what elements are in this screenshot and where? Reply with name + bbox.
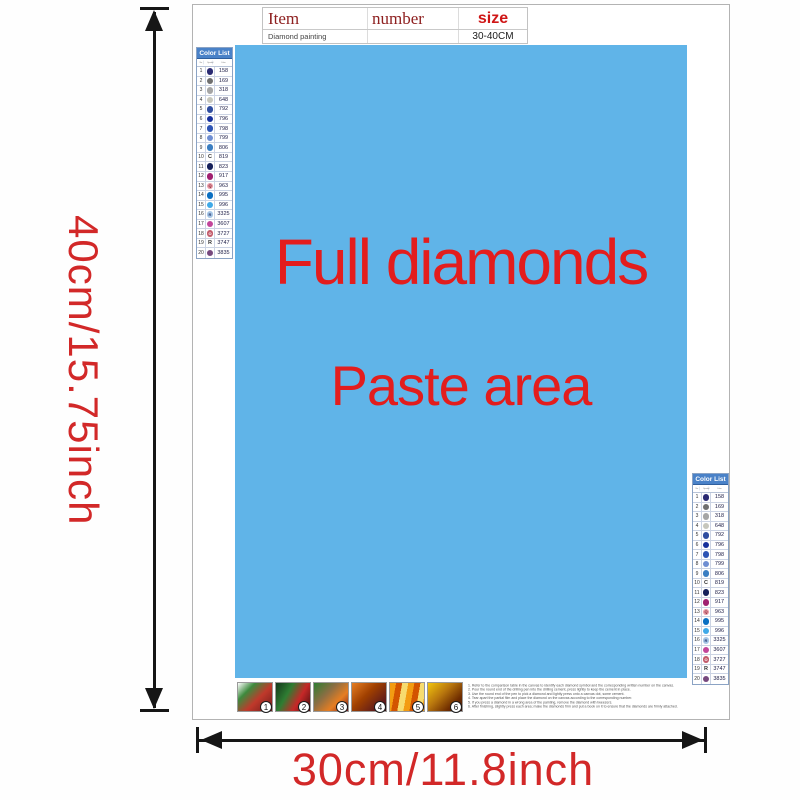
color-symbol: [702, 598, 711, 607]
color-symbol: R: [702, 636, 711, 645]
symbol-dot-icon: [703, 504, 710, 511]
symbol-dot-icon: [207, 125, 214, 132]
color-list-row: 5792: [197, 105, 232, 115]
color-code: 158: [711, 494, 728, 500]
color-number: 20: [197, 248, 206, 258]
color-number: 3: [197, 86, 206, 95]
color-number: 10: [693, 579, 702, 588]
color-symbol: [702, 522, 711, 531]
color-code: 798: [711, 552, 728, 558]
symbol-dot-icon: [703, 676, 710, 683]
symbol-dot-icon: [703, 542, 710, 549]
color-number: 8: [693, 560, 702, 569]
color-code: 3747: [215, 240, 232, 246]
color-list-row: 8799: [197, 134, 232, 144]
color-number: 14: [197, 191, 206, 200]
color-list-row: 173607: [197, 220, 232, 230]
color-number: 15: [197, 201, 206, 210]
color-code: 318: [215, 87, 232, 93]
color-symbol: [206, 172, 215, 181]
arrow-left-icon: [201, 731, 222, 749]
color-list-row: 203835: [197, 248, 232, 258]
color-list-row: 7798: [693, 550, 728, 560]
color-symbol: Q: [206, 182, 215, 191]
symbol-dot-icon: [207, 68, 214, 75]
color-symbol: [702, 550, 711, 559]
color-symbol: [702, 569, 711, 578]
instruction-line: 6. After finishing, slightly press each …: [468, 705, 722, 709]
color-list-row: 2169: [693, 503, 728, 513]
color-list-row: 13Q963: [693, 608, 728, 618]
symbol-dot-icon: [703, 599, 710, 606]
color-number: 12: [693, 598, 702, 607]
color-symbol: R: [702, 665, 711, 674]
color-list-row: 12917: [693, 598, 728, 608]
color-number: 9: [197, 143, 206, 152]
step-number-badge: 6: [450, 701, 462, 713]
color-symbol: [206, 115, 215, 124]
color-code: 823: [215, 164, 232, 170]
symbol-dot-icon: [703, 647, 710, 654]
color-number: 6: [197, 115, 206, 124]
color-number: 16: [693, 636, 702, 645]
paste-area-title: Full diamonds: [235, 225, 687, 299]
color-code: 799: [215, 135, 232, 141]
color-code: 823: [711, 590, 728, 596]
color-code: 963: [711, 609, 728, 615]
symbol-dot-icon: [703, 628, 710, 635]
color-symbol: [206, 162, 215, 171]
color-number: 18: [197, 229, 206, 238]
spec-number-value: [368, 30, 459, 43]
color-symbol: [206, 191, 215, 200]
color-code: 3607: [711, 647, 728, 653]
color-symbol: [206, 86, 215, 95]
step-number-badge: 2: [298, 701, 310, 713]
color-code: 3835: [215, 250, 232, 256]
color-code: 648: [711, 523, 728, 529]
symbol-dot-icon: [207, 173, 214, 180]
color-symbol: [702, 503, 711, 512]
symbol-dot-icon: [703, 561, 710, 568]
color-code: 792: [215, 106, 232, 112]
color-number: 17: [197, 220, 206, 229]
color-code: 996: [711, 628, 728, 634]
color-symbol: [702, 493, 711, 502]
color-list-subheader: No. Symbol Color: [693, 485, 728, 493]
symbol-dot-icon: [207, 163, 214, 170]
color-number: 17: [693, 646, 702, 655]
spec-table-row: Diamond painting 30-40CM: [263, 30, 527, 43]
color-number: 8: [197, 134, 206, 143]
color-code: 917: [711, 599, 728, 605]
step-thumbnail: 4: [351, 682, 387, 712]
color-number: 13: [197, 182, 206, 191]
instructions-text: 1. Refer to the comparison table in the …: [468, 684, 722, 709]
color-number: 20: [693, 674, 702, 684]
color-code: 796: [215, 116, 232, 122]
step-thumbnail: 2: [275, 682, 311, 712]
step-number-badge: 3: [336, 701, 348, 713]
spec-col-number: number: [368, 8, 459, 29]
symbol-dot-icon: [207, 221, 214, 228]
color-symbol: Q: [702, 608, 711, 617]
color-symbol: [702, 674, 711, 684]
color-list-col-no: No.: [200, 62, 203, 64]
color-list-row: 14995: [693, 617, 728, 627]
color-list-row: 173607: [693, 646, 728, 656]
color-code: 169: [711, 504, 728, 510]
symbol-dot-icon: [703, 513, 710, 520]
color-list-row: 1158: [693, 493, 728, 503]
color-symbol: [206, 220, 215, 229]
step-number-badge: 4: [374, 701, 386, 713]
symbol-dot-icon: [703, 589, 710, 596]
arrow-right-icon: [682, 731, 703, 749]
color-symbol: R: [206, 239, 215, 248]
symbol-dot-icon: [703, 618, 710, 625]
color-number: 14: [693, 617, 702, 626]
color-code: 3607: [215, 221, 232, 227]
symbol-dot-icon: Q: [703, 609, 710, 616]
color-list-row: 15996: [197, 201, 232, 211]
color-code: 917: [215, 173, 232, 179]
color-list-row: 19R3747: [693, 665, 728, 675]
color-symbol: [702, 617, 711, 626]
paste-area-subtitle: Paste area: [235, 353, 687, 418]
color-list-row: 10C819: [197, 153, 232, 163]
symbol-dot-icon: [703, 532, 710, 539]
color-symbol: C: [702, 579, 711, 588]
color-list-row: 14995: [197, 191, 232, 201]
color-number: 10: [197, 153, 206, 162]
arrow-down-icon: [145, 688, 163, 709]
color-code: 318: [711, 513, 728, 519]
horizontal-arrow-line: [199, 739, 705, 742]
symbol-dot-icon: [207, 106, 214, 113]
color-list-title: Color List: [693, 474, 728, 485]
color-number: 15: [693, 627, 702, 636]
color-list-row: 7798: [197, 124, 232, 134]
color-symbol: [702, 541, 711, 550]
color-symbol: [702, 531, 711, 540]
symbol-dot-icon: [703, 570, 710, 577]
color-code: 995: [215, 192, 232, 198]
color-symbol: [206, 134, 215, 143]
color-code: 796: [711, 542, 728, 548]
step-number-badge: 1: [260, 701, 272, 713]
color-code: 819: [711, 580, 728, 586]
color-code: 792: [711, 532, 728, 538]
color-number: 4: [197, 96, 206, 105]
color-list-row: 13Q963: [197, 182, 232, 192]
color-number: 19: [693, 665, 702, 674]
color-list-right: Color List No. Symbol Color 115821693318…: [692, 473, 729, 685]
symbol-dot-icon: [207, 250, 214, 257]
color-list-col-color: Color: [717, 488, 721, 490]
color-list-title: Color List: [197, 48, 232, 59]
color-number: 16: [197, 210, 206, 219]
color-list-row: 3318: [693, 512, 728, 522]
color-symbol: C: [206, 153, 215, 162]
color-number: 5: [197, 105, 206, 114]
item-spec-table: Item number size Diamond painting 30-40C…: [262, 7, 528, 44]
color-symbol: [206, 143, 215, 152]
color-list-row: 9806: [693, 569, 728, 579]
color-list-row: 203835: [693, 674, 728, 684]
color-list-left: Color List No. Symbol Color 115821693318…: [196, 47, 233, 259]
symbol-dot-icon: O: [207, 230, 214, 237]
color-number: 5: [693, 531, 702, 540]
color-symbol: [702, 560, 711, 569]
color-list-col-color: Color: [221, 62, 225, 64]
symbol-dot-icon: Q: [207, 183, 214, 190]
step-thumbnail: 5: [389, 682, 425, 712]
color-number: 1: [693, 493, 702, 502]
vertical-arrow-line: [153, 12, 156, 708]
arrow-up-icon: [145, 10, 163, 31]
color-list-row: 16R3325: [693, 636, 728, 646]
width-dimension-label: 30cm/11.8inch: [243, 744, 643, 796]
step-thumbnail: 3: [313, 682, 349, 712]
color-list-row: 10C819: [693, 579, 728, 589]
color-code: 798: [215, 126, 232, 132]
symbol-letter: R: [208, 240, 212, 246]
color-list-subheader: No. Symbol Color: [197, 59, 232, 67]
color-code: 3747: [711, 666, 728, 672]
instructions-block: 1. Refer to the comparison table in the …: [468, 684, 722, 712]
color-list-row: 1158: [197, 67, 232, 77]
color-number: 9: [693, 569, 702, 578]
symbol-letter: C: [208, 154, 212, 160]
symbol-letter: C: [704, 580, 708, 586]
symbol-dot-icon: [207, 192, 214, 199]
color-number: 6: [693, 541, 702, 550]
color-symbol: [702, 512, 711, 521]
color-symbol: [206, 77, 215, 86]
color-list-row: 12917: [197, 172, 232, 182]
spec-item-value: Diamond painting: [263, 30, 368, 43]
color-code: 799: [711, 561, 728, 567]
symbol-dot-icon: [703, 551, 710, 558]
color-code: 996: [215, 202, 232, 208]
color-list-row: 15996: [693, 627, 728, 637]
color-symbol: [206, 201, 215, 210]
spec-col-size: size: [459, 8, 527, 29]
symbol-dot-icon: [703, 494, 710, 501]
color-list-row: 6796: [197, 115, 232, 125]
color-number: 12: [197, 172, 206, 181]
color-number: 13: [693, 608, 702, 617]
step-thumbnail: 6: [427, 682, 463, 712]
symbol-dot-icon: [703, 523, 710, 530]
symbol-letter: R: [704, 666, 708, 672]
color-list-row: 8799: [693, 560, 728, 570]
spec-col-item: Item: [263, 8, 368, 29]
color-list-row: 4648: [693, 522, 728, 532]
vertical-arrow-bottom-cap: [140, 709, 169, 712]
color-code: 3727: [711, 657, 728, 663]
color-symbol: [206, 67, 215, 76]
color-number: 19: [197, 239, 206, 248]
color-list-row: 16R3325: [197, 210, 232, 220]
step-thumbnail: 1: [237, 682, 273, 712]
symbol-dot-icon: O: [703, 656, 710, 663]
color-number: 7: [197, 124, 206, 133]
symbol-dot-icon: [207, 87, 214, 94]
color-code: 806: [215, 145, 232, 151]
height-dimension-label: 40cm/15.75inch: [52, 140, 114, 600]
color-list-col-symbol: Symbol: [207, 62, 213, 64]
color-symbol: [206, 248, 215, 258]
color-list-rows: 11582169331846485792679677988799980610C8…: [693, 493, 728, 684]
color-list-row: 9806: [197, 143, 232, 153]
color-number: 2: [197, 77, 206, 86]
color-code: 963: [215, 183, 232, 189]
color-list-col-no: No.: [696, 488, 699, 490]
color-number: 11: [197, 162, 206, 171]
color-code: 995: [711, 618, 728, 624]
symbol-dot-icon: [207, 116, 214, 123]
color-list-row: 18O3727: [197, 229, 232, 239]
color-symbol: [206, 105, 215, 114]
color-number: 1: [197, 67, 206, 76]
color-list-row: 3318: [197, 86, 232, 96]
symbol-dot-icon: [207, 78, 214, 85]
color-symbol: R: [206, 210, 215, 219]
color-code: 819: [215, 154, 232, 160]
symbol-dot-icon: R: [703, 637, 710, 644]
step-thumbnails: 123456: [237, 682, 463, 712]
spec-table-header: Item number size: [263, 8, 527, 30]
color-code: 806: [711, 571, 728, 577]
symbol-dot-icon: [207, 144, 214, 151]
symbol-dot-icon: [207, 97, 214, 104]
color-code: 158: [215, 68, 232, 74]
color-symbol: [206, 96, 215, 105]
color-number: 4: [693, 522, 702, 531]
symbol-dot-icon: [207, 202, 214, 209]
color-code: 3727: [215, 231, 232, 237]
color-code: 3325: [711, 637, 728, 643]
color-number: 7: [693, 550, 702, 559]
color-list-row: 19R3747: [197, 239, 232, 249]
color-list-row: 18O3727: [693, 655, 728, 665]
color-number: 2: [693, 503, 702, 512]
color-list-row: 11823: [693, 588, 728, 598]
product-diagram: 40cm/15.75inch 30cm/11.8inch Item number…: [0, 0, 800, 800]
color-code: 169: [215, 78, 232, 84]
color-list-col-symbol: Symbol: [703, 488, 709, 490]
color-number: 18: [693, 655, 702, 664]
color-list-row: 4648: [197, 96, 232, 106]
color-number: 11: [693, 588, 702, 597]
color-code: 3325: [215, 211, 232, 217]
color-list-row: 6796: [693, 541, 728, 551]
color-symbol: O: [206, 229, 215, 238]
color-symbol: [702, 588, 711, 597]
color-code: 648: [215, 97, 232, 103]
color-symbol: [206, 124, 215, 133]
color-symbol: O: [702, 655, 711, 664]
color-symbol: [702, 646, 711, 655]
color-code: 3835: [711, 676, 728, 682]
symbol-dot-icon: R: [207, 211, 214, 218]
color-list-row: 11823: [197, 162, 232, 172]
color-symbol: [702, 627, 711, 636]
color-number: 3: [693, 512, 702, 521]
paste-area-canvas: Full diamonds Paste area: [235, 45, 687, 678]
step-number-badge: 5: [412, 701, 424, 713]
color-list-rows: 11582169331846485792679677988799980610C8…: [197, 67, 232, 258]
color-list-row: 2169: [197, 77, 232, 87]
color-list-row: 5792: [693, 531, 728, 541]
symbol-dot-icon: [207, 135, 214, 142]
spec-size-value: 30-40CM: [459, 30, 527, 43]
